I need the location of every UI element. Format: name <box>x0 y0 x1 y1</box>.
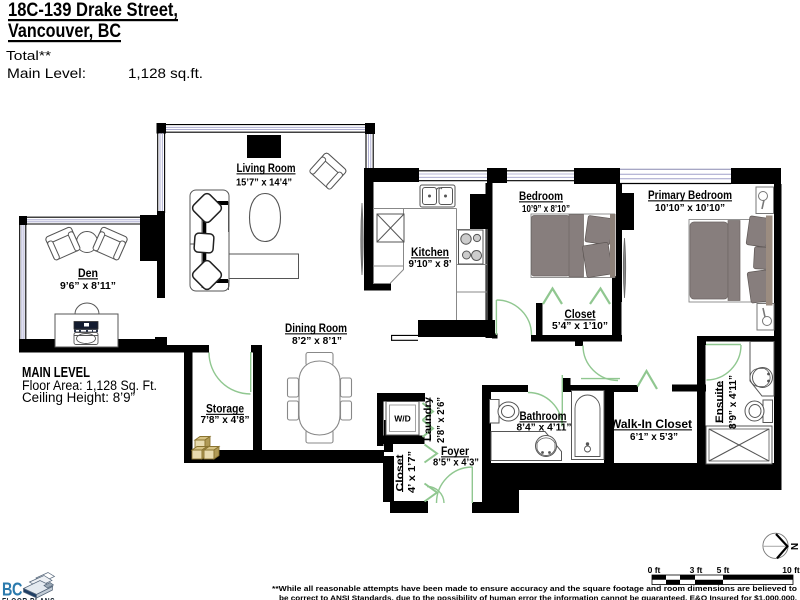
svg-text:0 ft: 0 ft <box>648 565 661 575</box>
svg-text:5’4” x 1’10”: 5’4” x 1’10” <box>552 320 608 332</box>
svg-text:4’ x 1’7”: 4’ x 1’7” <box>407 451 418 493</box>
svg-text:W/D: W/D <box>394 414 411 424</box>
svg-text:7’8” x 4’8”: 7’8” x 4’8” <box>201 414 250 426</box>
svg-text:N: N <box>788 543 799 550</box>
svg-text:10’10” x 10’10”: 10’10” x 10’10” <box>655 202 725 214</box>
svg-text:6’1” x 5’3”: 6’1” x 5’3” <box>630 431 678 443</box>
svg-text:Laundry: Laundry <box>422 397 434 441</box>
svg-text:Ceiling Height: 8’9”: Ceiling Height: 8’9” <box>22 390 135 405</box>
svg-text:8’5” x 4’3”: 8’5” x 4’3” <box>433 457 479 469</box>
svg-text:18C-139 Drake Street,: 18C-139 Drake Street, <box>8 0 178 21</box>
svg-text:9’10” x 8’: 9’10” x 8’ <box>409 258 452 270</box>
svg-text:FLOOR PLANS: FLOOR PLANS <box>2 597 55 600</box>
svg-text:Den: Den <box>78 268 98 280</box>
svg-text:Bedroom: Bedroom <box>519 191 563 203</box>
svg-text:Primary Bedroom: Primary Bedroom <box>648 190 732 202</box>
svg-text:10 ft: 10 ft <box>782 565 800 575</box>
svg-text:Total**: Total** <box>6 48 51 63</box>
svg-text:1,128 sq.ft.: 1,128 sq.ft. <box>128 65 203 81</box>
svg-text:5 ft: 5 ft <box>717 565 730 575</box>
svg-text:10’9” x 8’10”: 10’9” x 8’10” <box>522 203 570 215</box>
svg-text:8’9” x 4’11”: 8’9” x 4’11” <box>728 375 739 429</box>
svg-text:Closet: Closet <box>394 454 406 492</box>
svg-text:Main Level:: Main Level: <box>7 65 86 81</box>
svg-text:Vancouver, BC: Vancouver, BC <box>8 21 121 42</box>
svg-text:9’6” x 8’11”: 9’6” x 8’11” <box>60 280 116 292</box>
svg-text:8’4” x 4’11”: 8’4” x 4’11” <box>517 422 572 434</box>
svg-text:8’2” x 8’1”: 8’2” x 8’1” <box>292 335 342 347</box>
svg-text:15’7” x 14’4”: 15’7” x 14’4” <box>236 177 292 189</box>
svg-text:Walk-In Closet: Walk-In Closet <box>610 419 692 431</box>
svg-text:Ensuite: Ensuite <box>714 381 726 423</box>
svg-text:Living Room: Living Room <box>237 163 296 175</box>
svg-text:Dining Room: Dining Room <box>285 323 347 335</box>
svg-text:2’8” x 2’6”: 2’8” x 2’6” <box>436 397 447 443</box>
svg-text:be correct to ANSI Standards,: be correct to ANSI Standards, due to the… <box>279 593 797 600</box>
svg-text:3 ft: 3 ft <box>690 565 703 575</box>
svg-text:**While all reasonable attempt: **While all reasonable attempts have bee… <box>272 584 798 593</box>
